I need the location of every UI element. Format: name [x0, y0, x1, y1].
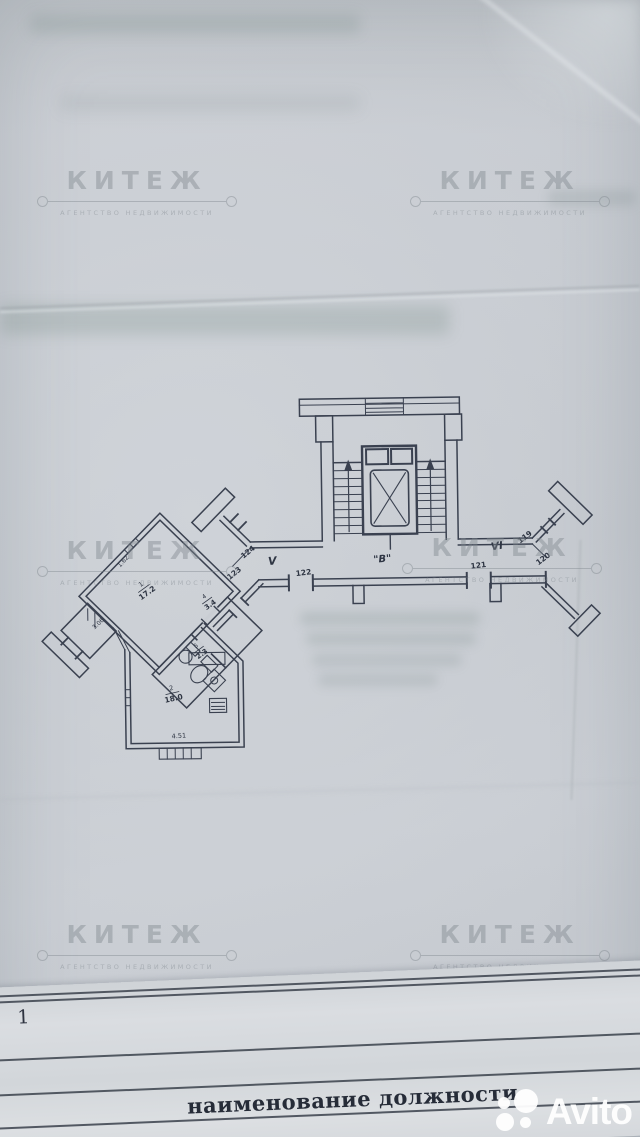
avito-logo-icon — [494, 1089, 540, 1133]
watermark-subtitle: АГЕНТСТВО НЕДВИЖИМОСТИ — [410, 209, 610, 217]
watermark-title: КИТЕЖ — [410, 168, 610, 193]
entry-stoop — [42, 632, 88, 678]
watermark-subtitle: АГЕНТСТВО НЕДВИЖИМОСТИ — [37, 963, 237, 971]
stove — [209, 698, 226, 712]
photographed-floorplan-page: "В" V VI 124 123 122 121 119 120 1 17.2 … — [0, 0, 640, 1137]
watermark-title: КИТЕЖ — [410, 922, 610, 947]
dimension-bottom: 4.51 — [171, 732, 186, 741]
watermark-flourish — [37, 950, 237, 961]
watermark-flourish — [37, 196, 237, 207]
ruled-line — [0, 1031, 640, 1062]
balcony — [159, 748, 201, 760]
agency-watermark: КИТЕЖ АГЕНТСТВО НЕДВИЖИМОСТИ — [402, 535, 602, 584]
watermark-subtitle: АГЕНТСТВО НЕДВИЖИМОСТИ — [37, 209, 237, 217]
agency-watermark: КИТЕЖ АГЕНТСТВО НЕДВИЖИМОСТИ — [37, 538, 237, 587]
watermark-flourish — [410, 950, 610, 961]
stair-up-arrow-icon — [426, 458, 434, 469]
watermark-subtitle: АГЕНТСТВО НЕДВИЖИМОСТИ — [37, 579, 237, 587]
stair-up-arrow-icon — [344, 460, 352, 471]
watermark-subtitle: АГЕНТСТВО НЕДВИЖИМОСТИ — [402, 576, 602, 584]
watermark-flourish — [37, 566, 237, 577]
agency-watermark: КИТЕЖ АГЕНТСТВО НЕДВИЖИМОСТИ — [37, 922, 237, 971]
agency-watermark: КИТЕЖ АГЕНТСТВО НЕДВИЖИМОСТИ — [37, 168, 237, 217]
watermark-title: КИТЕЖ — [402, 535, 602, 560]
door-number-124: 124 — [239, 544, 257, 561]
watermark-flourish — [402, 563, 602, 574]
stair-up-arrow-icon — [348, 469, 349, 532]
svg-text:4: 4 — [201, 593, 208, 601]
stair-up-arrow-icon — [430, 467, 431, 530]
page-marker: 5 1 — [0, 1006, 36, 1030]
toilet-fixture — [187, 662, 211, 686]
watermark-title: КИТЕЖ — [37, 538, 237, 563]
watermark-flourish — [410, 196, 610, 207]
watermark-title: КИТЕЖ — [37, 168, 237, 193]
stairhall-label: "В" — [373, 553, 392, 565]
agency-watermark: КИТЕЖ АГЕНТСТВО НЕДВИЖИМОСТИ — [410, 168, 610, 217]
door-number-122: 122 — [295, 567, 312, 578]
avito-watermark: Avito — [494, 1089, 632, 1133]
avito-wordmark: Avito — [546, 1093, 632, 1130]
top-wall-bar — [299, 397, 459, 416]
svg-text:2: 2 — [168, 684, 174, 693]
watermark-title: КИТЕЖ — [37, 922, 237, 947]
corridor-left-label: V — [268, 554, 279, 568]
sink-fixture — [176, 648, 194, 666]
